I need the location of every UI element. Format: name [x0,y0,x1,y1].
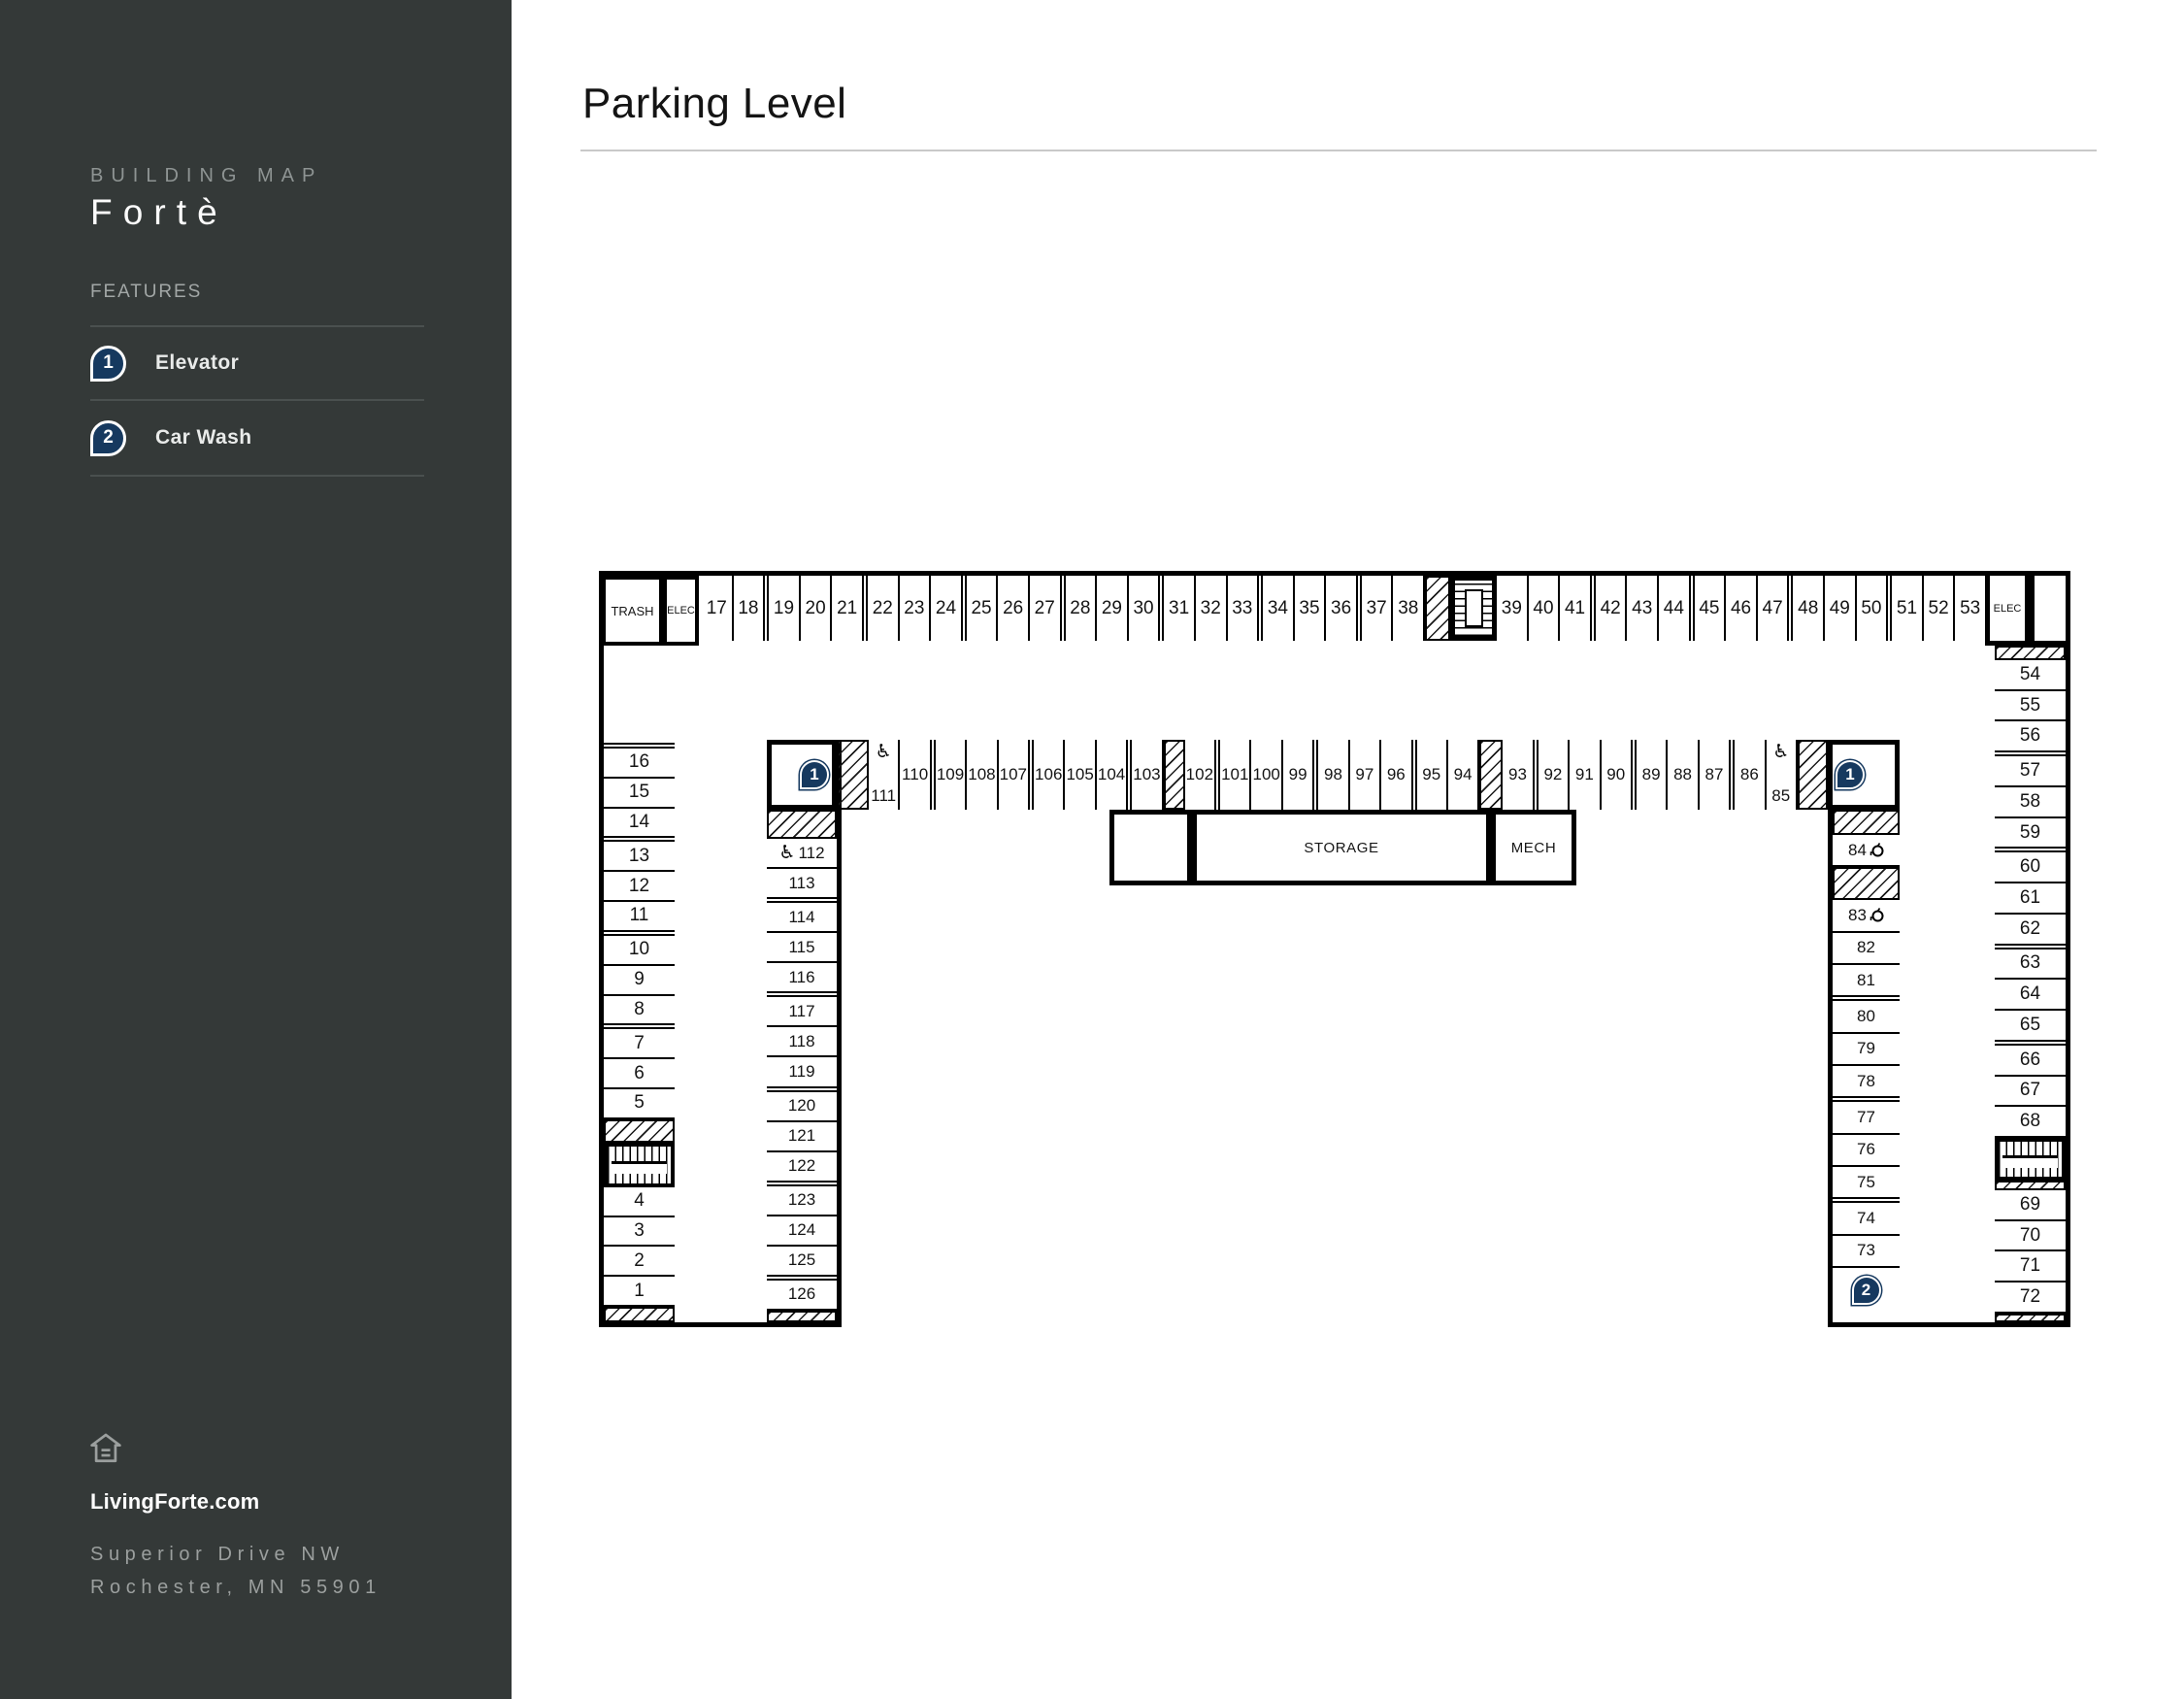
stall-68: 68 [1995,1107,2066,1138]
stall-number: 17 [707,598,727,619]
left-outer-stall-column: 16151413121110987654321 [604,743,675,1322]
elec-room-top-left: ELEC [663,576,699,646]
stall-number: 9 [634,969,645,990]
stall-76: 76 [1833,1135,1900,1167]
stall-number: 79 [1857,1039,1875,1058]
stall-93: 93 [1503,740,1538,810]
stall-number: 80 [1857,1007,1875,1026]
hatched-area [1479,740,1503,810]
stall-number: 37 [1367,598,1387,619]
stall-number: 67 [2020,1080,2040,1101]
stall-107: 107 [999,740,1034,810]
stall-number: 84 [1848,841,1867,860]
stall-number: 57 [2020,760,2040,782]
left-inner-stall-column: ♿112113114115116117118119120121122123124… [767,810,837,1322]
feature-row-elevator[interactable]: 1 Elevator [90,325,424,401]
stall-number: 20 [806,598,826,619]
stall-91: 91 [1570,740,1601,810]
right-inner-stall-column: 8483828180797877767574732 [1833,810,1900,1322]
feature-legend: 1 Elevator 2 Car Wash [90,325,424,477]
badge-number: 2 [1862,1281,1870,1300]
stairwell [1995,1138,2066,1181]
stall-number: 66 [2020,1049,2040,1071]
stall-36: 36 [1326,576,1362,641]
stall-28: 28 [1066,576,1098,641]
hatched-area [1995,1181,2066,1190]
stall-119: 119 [767,1057,837,1091]
stall-number: 6 [634,1063,645,1084]
stall-number: 19 [774,598,794,619]
stall-22: 22 [868,576,900,641]
stall-number: 96 [1387,765,1406,784]
trash-room: TRASH [602,576,663,646]
stall-content: ♿112 [778,844,824,863]
hatched-area [1995,646,2066,660]
stall-54: 54 [1995,660,2066,691]
features-heading: FEATURES [90,282,202,303]
stall-16: 16 [604,743,675,779]
stall-number: 117 [788,1002,814,1021]
stall-number: 123 [788,1190,815,1210]
stall-number: 116 [788,968,814,987]
stall-number: 65 [2020,1015,2040,1036]
stall-number: 7 [634,1033,645,1054]
stall-number: 58 [2020,791,2040,813]
badge-number: 1 [103,352,114,374]
stall-number: 100 [1252,765,1279,784]
stall-number: 71 [2020,1255,2040,1277]
stall-number: 47 [1763,598,1783,619]
stall-number: 50 [1861,598,1881,619]
stall-3: 3 [604,1217,675,1248]
stall-number: 120 [788,1096,815,1116]
stall-number: 38 [1398,598,1418,619]
stall-24: 24 [931,576,967,641]
stall-19: 19 [769,576,801,641]
stall-7: 7 [604,1029,675,1059]
stall-number: 78 [1857,1072,1875,1091]
stall-59: 59 [1995,818,2066,853]
stall-111: ♿111 [869,740,900,810]
stall-23: 23 [900,576,932,641]
website-link[interactable]: LivingForte.com [90,1489,259,1515]
stall-number: 92 [1543,765,1562,784]
stall-number: 15 [629,782,649,803]
stall-number: 26 [1003,598,1023,619]
stall-95: 95 [1417,740,1448,810]
stall-105: 105 [1065,740,1096,810]
stall-82: 82 [1833,933,1900,965]
stall-80: 80 [1833,1001,1900,1033]
address-line-1: Superior Drive NW [90,1538,381,1571]
stall-109: 109 [936,740,967,810]
stall-51: 51 [1892,576,1924,641]
stall-number: 22 [873,598,893,619]
stall-21: 21 [832,576,868,641]
stall-94: 94 [1448,740,1479,810]
stall-17: 17 [702,576,734,641]
ev-charger-icon [1870,907,1884,923]
stall-number: 111 [871,786,896,806]
stall-117: 117 [767,997,837,1027]
parking-floor-plan: TRASH ELEC ELEC 171819202122232425262728… [599,571,2070,1327]
stall-55: 55 [1995,691,2066,722]
stall-45: 45 [1695,576,1727,641]
stall-number: 126 [788,1284,815,1304]
stall-number: 112 [798,844,824,863]
stall-number: 34 [1268,598,1288,619]
stall-number: 113 [788,874,814,893]
plan-wall-right [2066,571,2070,1327]
stall-41: 41 [1560,576,1596,641]
stall-62: 62 [1995,915,2066,949]
stall-number: 36 [1331,598,1351,619]
stall-number: 28 [1070,598,1090,619]
stall-number: 75 [1857,1173,1875,1192]
stall-number: 98 [1324,765,1342,784]
stall-26: 26 [998,576,1030,641]
stall-90: 90 [1602,740,1637,810]
stall-8: 8 [604,996,675,1030]
stall-58: 58 [1995,787,2066,818]
stall-118: 118 [767,1027,837,1057]
stall-89: 89 [1637,740,1668,810]
stall-81: 81 [1833,965,1900,1001]
stall-38: 38 [1393,576,1425,641]
stall-number: 91 [1575,765,1594,784]
stall-number: 53 [1960,598,1980,619]
stall-number: 93 [1508,765,1527,784]
stall-number: 46 [1731,598,1751,619]
stairwell [1450,576,1497,641]
stall-102: 102 [1185,740,1220,810]
stall-122: 122 [767,1152,837,1186]
stall-2: 2 [604,1247,675,1277]
stall-50: 50 [1857,576,1893,641]
stall-42: 42 [1596,576,1628,641]
stall-73: 73 [1833,1236,1900,1268]
elec-room-label: ELEC [1994,603,2022,615]
stall-56: 56 [1995,721,2066,756]
middle-stall-row: 1♿11111010910810710610510410310210110099… [767,740,1900,810]
stall-number: 83 [1848,906,1867,925]
stall-18: 18 [734,576,770,641]
car-wash-area: 2 [1833,1268,1900,1322]
hatched-area [767,810,837,839]
stall-number: 122 [788,1156,815,1176]
stall-1: 1 [604,1277,675,1307]
stall-67: 67 [1995,1077,2066,1108]
stall-number: 63 [2020,952,2040,974]
feature-row-car-wash[interactable]: 2 Car Wash [90,401,424,477]
utility-room [1109,810,1192,885]
stall-number: 59 [2020,822,2040,844]
stall-98: 98 [1318,740,1349,810]
badge-number: 1 [1845,765,1854,784]
stall-number: 69 [2020,1194,2040,1216]
stall-125: 125 [767,1247,837,1281]
stall-86: 86 [1735,740,1766,810]
stall-52: 52 [1924,576,1956,641]
building-name: Fortè [90,192,228,233]
wheelchair-icon: ♿ [778,844,795,862]
stall-35: 35 [1295,576,1327,641]
stall-97: 97 [1350,740,1381,810]
page-title: Parking Level [582,80,846,128]
stall-content: 84 [1848,841,1884,860]
stall-14: 14 [604,809,675,843]
hatched-area [604,1307,675,1322]
stall-61: 61 [1995,883,2066,915]
address-line-2: Rochester, MN 55901 [90,1571,381,1604]
stall-83: 83 [1833,900,1900,932]
stall-number: 33 [1232,598,1252,619]
stall-number: 35 [1299,598,1319,619]
stall-124: 124 [767,1216,837,1247]
stall-number: 5 [634,1092,645,1114]
stall-4: 4 [604,1187,675,1217]
stall-10: 10 [604,936,675,966]
sidebar: BUILDING MAP Fortè FEATURES 1 Elevator 2… [0,0,512,1699]
building-map-eyebrow: BUILDING MAP [90,165,322,187]
stall-32: 32 [1196,576,1228,641]
stall-number: 89 [1642,765,1661,784]
stall-120: 120 [767,1092,837,1122]
stall-60: 60 [1995,852,2066,883]
stall-number: 118 [788,1032,814,1051]
mech-room: MECH [1491,810,1576,885]
hatched-area [1425,576,1450,641]
stall-53: 53 [1955,576,1987,641]
elec-room-top-right: ELEC [1985,571,2030,646]
stall-number: 2 [634,1250,645,1272]
stall-number: 86 [1740,765,1759,784]
address: Superior Drive NW Rochester, MN 55901 [90,1538,381,1604]
stall-39: 39 [1497,576,1529,641]
elevator-room: 1 [1828,740,1900,810]
stall-number: 99 [1289,765,1307,784]
stall-number: 41 [1565,598,1585,619]
hatched-area [837,740,869,810]
stall-40: 40 [1529,576,1561,641]
stall-number: 29 [1102,598,1122,619]
stall-number: 104 [1098,765,1125,784]
stall-number: 32 [1201,598,1221,619]
stall-number: 40 [1533,598,1553,619]
stall-number: 44 [1664,598,1684,619]
stall-108: 108 [967,740,998,810]
stall-number: 43 [1632,598,1652,619]
hatched-area [604,1119,675,1143]
hatched-area [1995,1314,2066,1322]
stall-113: 113 [767,869,837,903]
stall-103: 103 [1132,740,1163,810]
stall-number: 49 [1830,598,1850,619]
badge-number: 1 [810,765,818,784]
stall-number: 88 [1673,765,1692,784]
stall-number: 64 [2020,983,2040,1005]
stall-number: 114 [788,908,814,927]
stall-number: 1 [634,1281,645,1302]
stall-number: 105 [1066,765,1093,784]
stall-57: 57 [1995,756,2066,787]
car-wash-badge: 2 [90,420,126,456]
stall-number: 55 [2020,695,2040,716]
stall-number: 108 [968,765,995,784]
feature-label: Elevator [155,351,239,375]
stall-number: 54 [2020,664,2040,685]
stall-70: 70 [1995,1221,2066,1252]
stall-92: 92 [1539,740,1570,810]
stall-number: 48 [1798,598,1818,619]
stall-25: 25 [967,576,999,641]
stall-number: 10 [629,939,649,960]
hatched-area [1164,740,1185,810]
stall-48: 48 [1793,576,1825,641]
stall-12: 12 [604,872,675,902]
stall-126: 126 [767,1281,837,1311]
stall-number: 70 [2020,1225,2040,1247]
hatched-area [1833,867,1900,900]
stall-number: 106 [1035,765,1062,784]
stall-number: 119 [788,1062,814,1082]
stall-number: 25 [971,598,991,619]
elevator-room: 1 [767,740,837,810]
title-divider [580,150,2097,151]
stall-number: 115 [788,938,814,957]
elec-room-label: ELEC [667,605,695,616]
stall-6: 6 [604,1059,675,1089]
top-stall-row: 1718192021222324252627282930313233343536… [702,576,1987,641]
stall-number: 8 [634,999,645,1020]
stall-84: 84 [1833,835,1900,867]
wheelchair-icon: ♿ [876,743,892,761]
stall-number: 51 [1897,598,1917,619]
stall-number: 73 [1857,1241,1875,1260]
stall-number: 76 [1857,1140,1875,1159]
stall-31: 31 [1164,576,1196,641]
stall-number: 30 [1133,598,1153,619]
elevator-badge: 1 [90,346,126,382]
stall-121: 121 [767,1122,837,1152]
stall-number: 42 [1601,598,1621,619]
map-badge-elevator: 1 [800,760,829,789]
stall-20: 20 [801,576,833,641]
stall-number: 109 [937,765,964,784]
stall-115: 115 [767,933,837,963]
storage-room-label: STORAGE [1304,840,1378,856]
stall-116: 116 [767,963,837,997]
stall-number: 52 [1929,598,1949,619]
map-badge-elevator: 1 [1836,760,1865,789]
stall-123: 123 [767,1186,837,1216]
stall-number: 27 [1035,598,1055,619]
stall-content: 83 [1848,906,1884,925]
stall-9: 9 [604,966,675,996]
stall-number: 121 [788,1126,815,1146]
stall-number: 16 [629,751,649,773]
stall-number: 74 [1857,1209,1875,1228]
stall-number: 72 [2020,1286,2040,1308]
stall-43: 43 [1627,576,1659,641]
stall-number: 60 [2020,856,2040,878]
stall-100: 100 [1251,740,1282,810]
stall-79: 79 [1833,1034,1900,1066]
stall-99: 99 [1283,740,1318,810]
stall-number: 23 [904,598,924,619]
stall-87: 87 [1700,740,1735,810]
stall-number: 90 [1606,765,1625,784]
stall-number: 14 [629,812,649,833]
stall-number: 85 [1771,786,1790,806]
stall-number: 18 [738,598,758,619]
stall-88: 88 [1668,740,1699,810]
stall-number: 110 [902,765,928,784]
stall-72: 72 [1995,1283,2066,1314]
stall-96: 96 [1381,740,1416,810]
stall-number: 68 [2020,1111,2040,1132]
stall-112: ♿112 [767,839,837,869]
hatched-area [1798,740,1828,810]
ev-charger-icon [1870,842,1884,858]
stall-106: 106 [1034,740,1065,810]
stall-66: 66 [1995,1046,2066,1077]
stall-number: 4 [634,1190,645,1212]
stall-33: 33 [1228,576,1264,641]
stall-number: 12 [629,876,649,897]
plan-wall-inner-left-wing [837,740,842,1327]
stall-number: 56 [2020,725,2040,747]
trash-room-label: TRASH [611,604,653,618]
stall-44: 44 [1659,576,1695,641]
stall-5: 5 [604,1089,675,1119]
stall-85: ♿85 [1767,740,1798,810]
stall-number: 77 [1857,1108,1875,1127]
map-badge-car-wash: 2 [1852,1276,1881,1305]
stall-75: 75 [1833,1167,1900,1203]
stall-74: 74 [1833,1203,1900,1235]
plan-wall-bottom-left-wing [599,1322,842,1327]
house-icon [88,1431,123,1471]
stall-number: 124 [788,1220,815,1240]
mech-room-label: MECH [1511,840,1557,856]
stall-27: 27 [1030,576,1066,641]
stall-number: 11 [630,905,649,926]
storage-mech-row: STORAGEMECH [1109,810,1576,885]
stall-number: 94 [1454,765,1473,784]
stall-49: 49 [1825,576,1857,641]
stall-77: 77 [1833,1102,1900,1134]
stall-34: 34 [1263,576,1295,641]
plan-wall-bottom-right-wing [1828,1322,2070,1327]
stall-number: 97 [1355,765,1373,784]
stall-number: 24 [936,598,956,619]
stall-15: 15 [604,779,675,809]
stall-104: 104 [1097,740,1132,810]
stall-number: 13 [629,846,649,867]
stall-110: 110 [900,740,935,810]
stall-number: 101 [1221,765,1248,784]
stall-number: 102 [1186,765,1213,784]
stall-number: 21 [837,598,857,619]
stall-number: 45 [1699,598,1719,619]
stall-number: 31 [1169,598,1189,619]
feature-label: Car Wash [155,426,251,450]
stairwell [604,1143,675,1187]
stall-number: 125 [788,1250,815,1270]
stall-number: 62 [2020,918,2040,940]
stall-78: 78 [1833,1066,1900,1102]
